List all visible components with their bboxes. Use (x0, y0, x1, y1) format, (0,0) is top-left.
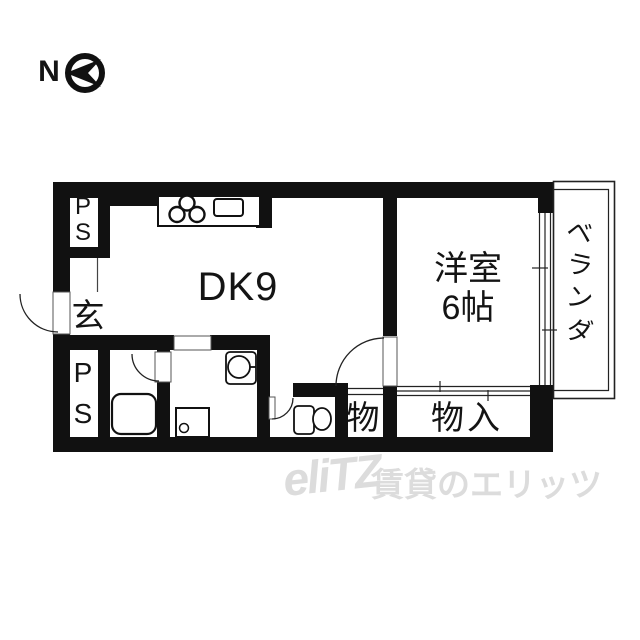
room-label-genkan: 玄 (69, 299, 107, 334)
wall-dk-western (383, 196, 397, 336)
sink-icon (214, 199, 243, 216)
wall-mid-right (210, 335, 270, 350)
wall-mid-left (53, 335, 174, 350)
washbasin-icon (226, 352, 256, 384)
floorplan-canvas: N PS PS 玄 DK9 洋室 6帖 物 物入 ベランダ eliTZ 賃貸のエ… (0, 0, 640, 640)
western-room-door-leaf (383, 337, 397, 386)
compass-icon (66, 56, 102, 90)
wall-right-bottom-block (530, 385, 553, 452)
room-label-ps-bottom: PS (66, 352, 100, 434)
washroom-door-leaf (174, 336, 211, 350)
room-label-ps-top: PS (66, 194, 100, 246)
room-label-western-room: 洋室 6帖 (408, 250, 528, 328)
room-label-storage-small: 物 (344, 401, 382, 436)
wall-top-extra (98, 198, 160, 206)
western-room-door-arc (336, 338, 384, 386)
watermark-text: 賃貸のエリッツ (371, 458, 602, 506)
bathroom-door-leaf (155, 352, 171, 382)
compass-north-label: N (34, 56, 64, 88)
washing-machine-pan-icon (176, 408, 209, 437)
toilet-icon (294, 406, 331, 434)
wall-storage-divider (383, 386, 397, 446)
entrance-door-leaf (53, 292, 70, 334)
wall-toilet-top (293, 383, 335, 397)
wall-bottom (53, 437, 553, 452)
western-room-size: 6帖 (408, 289, 528, 328)
wall-right-top-block (538, 182, 553, 213)
wall-washroom-right (257, 350, 270, 452)
bathtub-icon (112, 394, 156, 434)
room-label-storage-closet: 物入 (426, 401, 508, 436)
entrance-door-arc (20, 294, 58, 332)
room-label-dk: DK9 (178, 266, 298, 308)
toilet-door-leaf (269, 397, 275, 419)
wall-top (53, 182, 553, 198)
western-room-name: 洋室 (408, 250, 528, 289)
wall-ps-top-bottom (67, 247, 110, 258)
watermark-logo: eliTZ (280, 443, 382, 507)
closet-sliding-lines (348, 381, 530, 401)
room-label-veranda: ベランダ (559, 219, 599, 351)
